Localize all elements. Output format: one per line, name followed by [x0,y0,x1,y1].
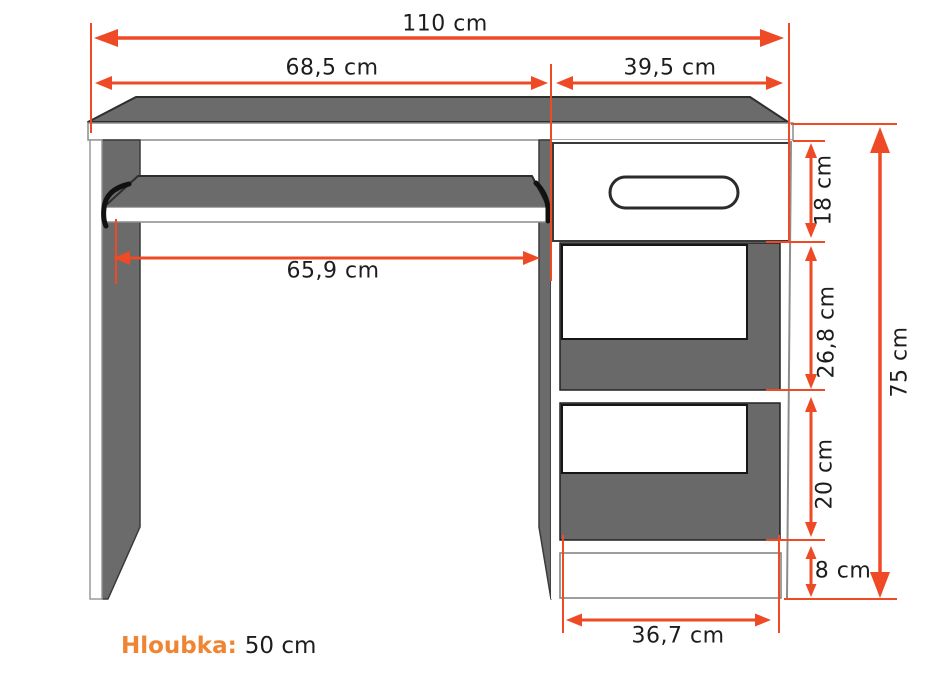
drawer-front [553,143,789,241]
keyboard-tray [104,176,548,226]
desk-drawing [0,0,928,686]
dim-plinth-height-label: 8 cm [815,559,872,584]
dim-left-section-label: 68,5 cm [285,56,378,81]
plinth [560,553,781,598]
desk-top [88,97,793,140]
right-cabinet [551,140,792,599]
dim-bottom-width-label: 36,7 cm [631,624,724,649]
dim-tray-width-label: 65,9 cm [286,259,379,284]
depth-note-label: Hloubka: [121,633,237,659]
dim-lower-shelf-height-label: 20 cm [813,438,838,509]
shelf-opening-lower [560,403,780,540]
dim-upper-shelf-height-label: 26,8 cm [815,285,840,378]
dim-total-height-label: 75 cm [888,326,913,397]
drawer-handle [610,177,738,208]
dim-total-width-label: 110 cm [402,12,488,37]
dim-right-section-label: 39,5 cm [623,56,716,81]
dim-drawer-height-label: 18 cm [812,154,837,225]
depth-note: Hloubka: 50 cm [121,633,316,659]
depth-note-value: 50 cm [245,633,317,659]
shelf-opening-upper [560,243,780,390]
desk-dimension-diagram: 110 cm 68,5 cm 39,5 cm 65,9 cm 36,7 cm 1… [0,0,928,686]
